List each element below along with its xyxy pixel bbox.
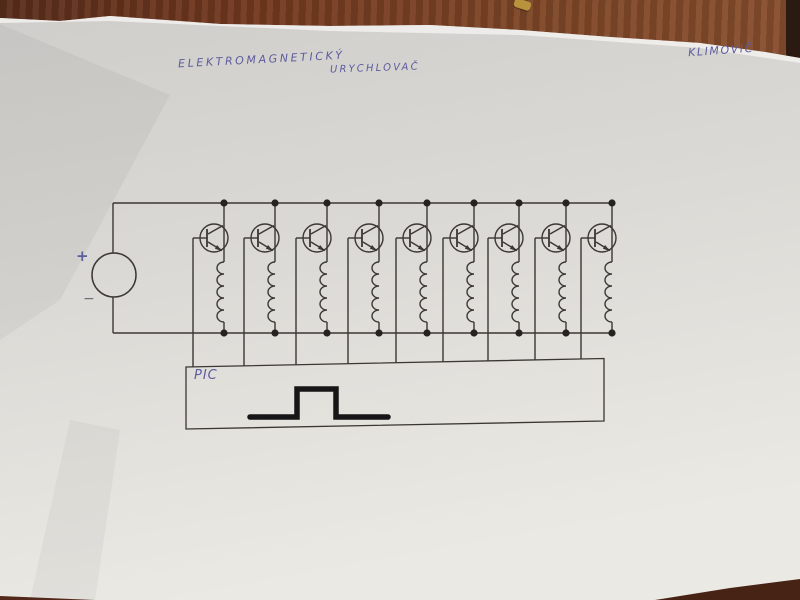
positive-terminal-label: + bbox=[76, 247, 89, 265]
junction-dot-bottom bbox=[470, 329, 477, 336]
junction-dot-top bbox=[375, 199, 382, 206]
negative-terminal-label: − bbox=[83, 291, 95, 307]
junction-dot-top bbox=[271, 199, 278, 206]
schematic-drawing bbox=[0, 0, 800, 600]
junction-dot-bottom bbox=[608, 329, 615, 336]
photo-of-schematic: ELEKTROMAGNETICKÝ URYCHLOVAČ KLIMOVIČ PI… bbox=[0, 0, 800, 600]
junction-dot-top bbox=[562, 199, 569, 206]
junction-dot-top bbox=[423, 199, 430, 206]
junction-dot-bottom bbox=[562, 329, 569, 336]
junction-dot-bottom bbox=[220, 329, 227, 336]
pic-controller-label: PIC bbox=[194, 368, 218, 383]
junction-dot-top bbox=[220, 199, 227, 206]
junction-dot-top bbox=[515, 199, 522, 206]
junction-dot-bottom bbox=[323, 329, 330, 336]
junction-dot-top bbox=[608, 199, 615, 206]
junction-dot-top bbox=[470, 199, 477, 206]
junction-dot-bottom bbox=[423, 329, 430, 336]
junction-dot-bottom bbox=[515, 329, 522, 336]
junction-dot-bottom bbox=[271, 329, 278, 336]
junction-dot-top bbox=[323, 199, 330, 206]
junction-dot-bottom bbox=[375, 329, 382, 336]
